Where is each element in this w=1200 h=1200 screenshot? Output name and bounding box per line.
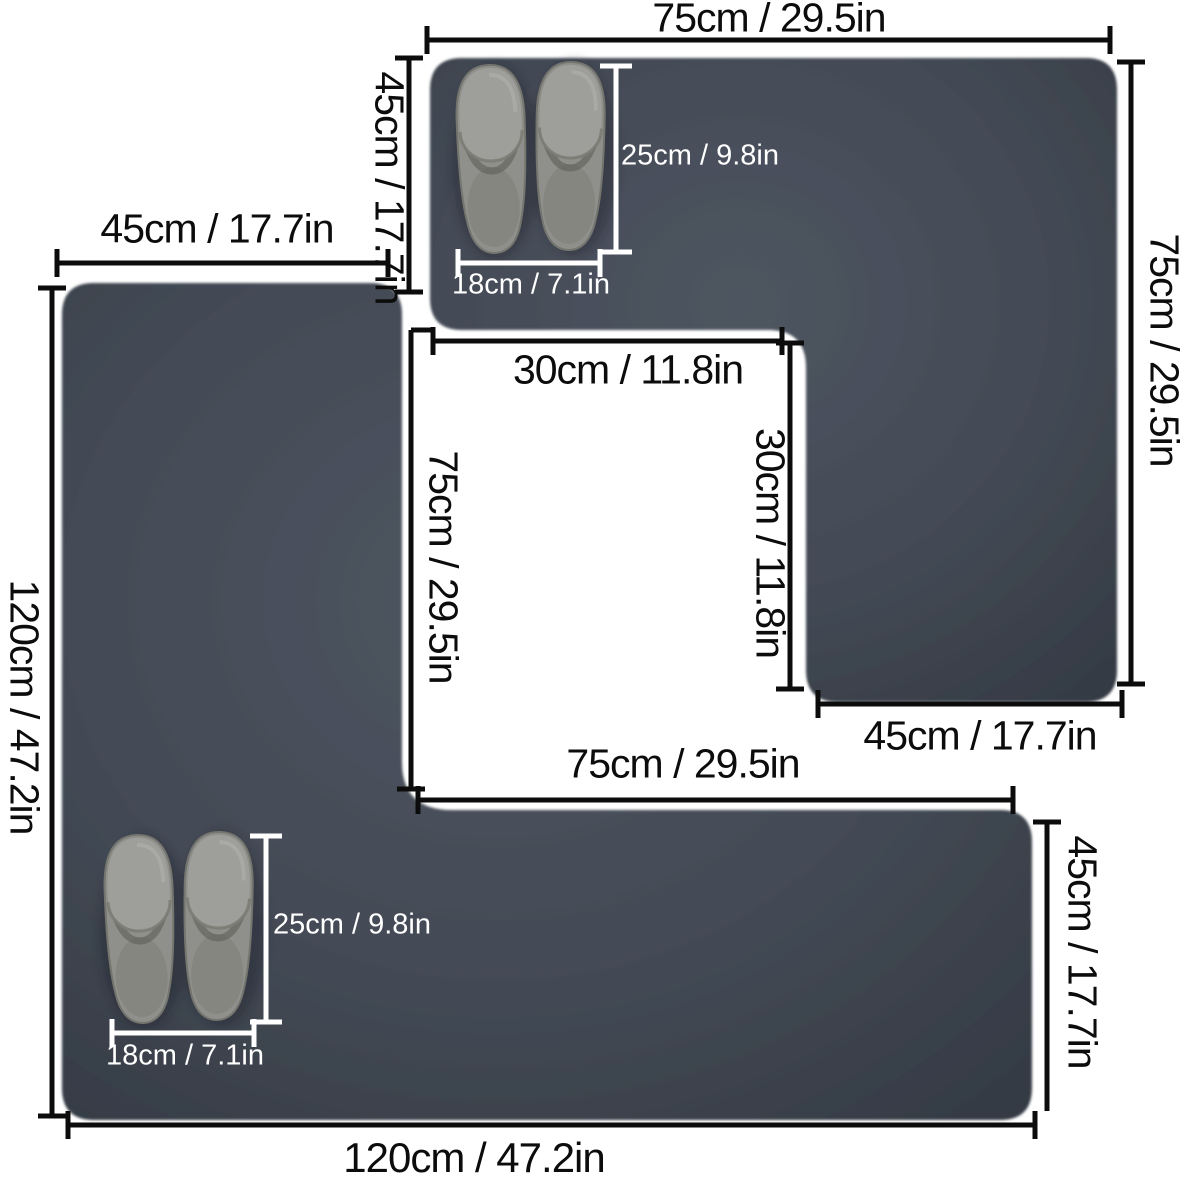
label-top-slipper-length: 25cm / 9.8in <box>621 142 779 171</box>
dim-line-bottom-mat-arm-width <box>418 786 1013 814</box>
label-top-slipper-width: 18cm / 7.1in <box>452 271 610 300</box>
label-bottom-mat-top-width: 45cm / 17.7in <box>100 209 333 250</box>
dim-line-bottom-mat-right-height <box>1033 822 1061 1111</box>
dim-line-bottom-mat-top-width <box>57 249 388 277</box>
label-top-mat-right-height: 75cm / 29.5in <box>1144 233 1185 466</box>
label-bottom-slipper-width: 18cm / 7.1in <box>106 1042 264 1071</box>
label-bottom-mat-right-height: 45cm / 17.7in <box>1062 835 1103 1068</box>
label-bottom-mat-bottom-width: 120cm / 47.2in <box>343 1137 605 1179</box>
l-shaped-mat-dimension-diagram: 75cm / 29.5in 45cm / 17.7in 25cm / 9.8in… <box>0 0 1200 1200</box>
label-top-mat-foot-width: 45cm / 17.7in <box>863 716 1096 757</box>
diagram-canvas <box>0 0 1200 1200</box>
label-bottom-slipper-length: 25cm / 9.8in <box>273 911 431 940</box>
label-top-mat-top-width: 75cm / 29.5in <box>652 0 885 39</box>
label-bottom-mat-arm-width: 75cm / 29.5in <box>566 744 799 785</box>
label-bottom-mat-left-height: 120cm / 47.2in <box>4 580 45 835</box>
label-top-mat-left-height: 45cm / 17.7in <box>369 71 410 304</box>
label-top-mat-notch-width: 30cm / 11.8in <box>513 350 743 391</box>
label-top-mat-notch-height: 30cm / 11.8in <box>750 428 791 658</box>
label-bottom-mat-notch-height: 75cm / 29.5in <box>423 450 464 683</box>
